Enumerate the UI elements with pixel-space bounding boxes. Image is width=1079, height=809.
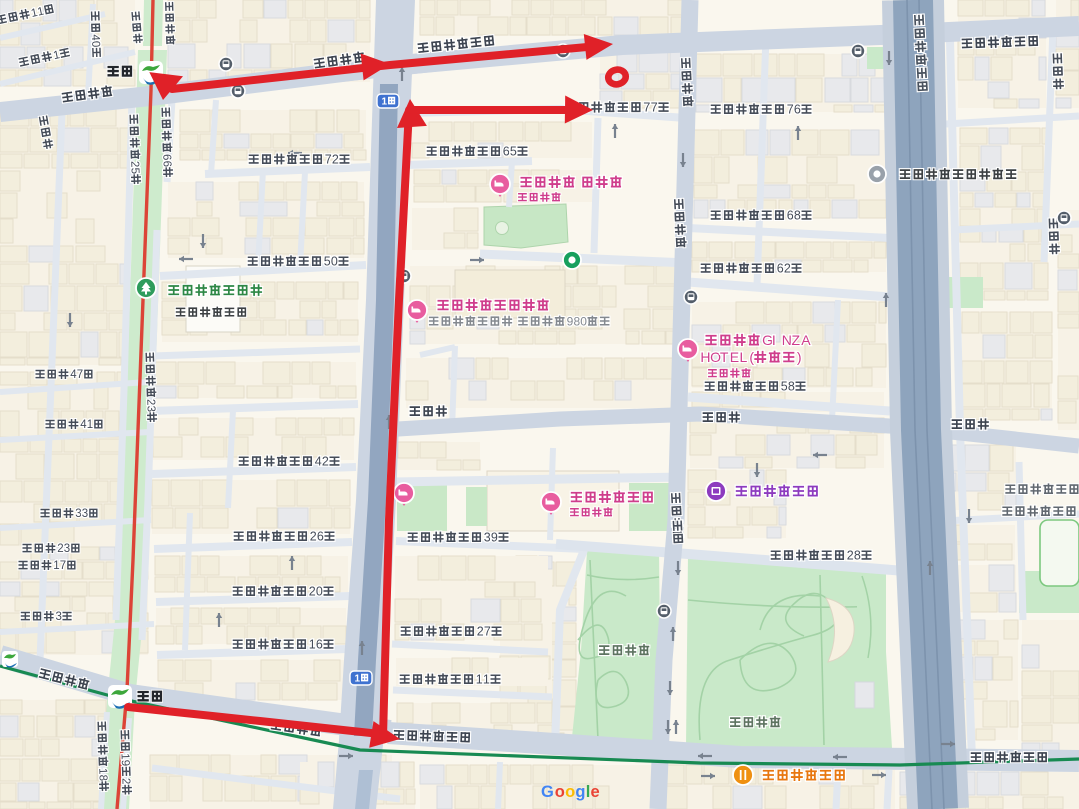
svg-text:8: 8 [794,209,801,223]
svg-text:5: 5 [324,255,331,269]
svg-text:8: 8 [97,774,109,781]
svg-text:2: 2 [322,455,329,469]
svg-text:6: 6 [316,638,323,652]
svg-text:8: 8 [854,549,861,563]
svg-text:9: 9 [119,760,131,767]
svg-text:3: 3 [75,508,81,520]
svg-text:3: 3 [484,531,491,545]
svg-text:L: L [740,349,748,365]
svg-text:1: 1 [483,673,490,687]
svg-text:3: 3 [56,611,62,623]
svg-text:2: 2 [477,625,484,639]
svg-text:6: 6 [777,262,784,276]
svg-text:0: 0 [316,585,323,599]
svg-text:6: 6 [503,145,510,159]
svg-text:I: I [772,332,776,348]
svg-text:7: 7 [77,369,83,381]
svg-text:1: 1 [87,419,93,431]
svg-text:7: 7 [643,100,650,115]
svg-text:2: 2 [332,153,339,167]
svg-text:0: 0 [331,255,338,269]
svg-text:6: 6 [161,160,173,167]
svg-text:1: 1 [382,97,388,108]
svg-text:2: 2 [119,778,131,785]
svg-text:7: 7 [787,103,794,117]
svg-text:1: 1 [53,560,59,572]
svg-text:2: 2 [57,543,63,555]
svg-text:1: 1 [355,674,361,685]
svg-text:6: 6 [787,209,794,223]
svg-text:T: T [720,349,729,365]
svg-text:): ) [797,349,802,365]
svg-text:2: 2 [310,530,317,544]
svg-text:5: 5 [510,145,517,159]
svg-text:o: o [555,783,565,801]
svg-text:1: 1 [309,638,316,652]
svg-text:7: 7 [484,625,491,639]
svg-text:0: 0 [580,314,587,328]
svg-text:5: 5 [781,380,788,394]
svg-text:4: 4 [315,455,322,469]
svg-text:A: A [801,332,811,348]
svg-text:0: 0 [89,41,101,48]
svg-text:e: e [591,783,600,801]
svg-text:g: g [575,783,585,801]
svg-text:Z: Z [792,332,801,348]
svg-text:3: 3 [145,405,157,412]
svg-text:6: 6 [794,103,801,117]
svg-text:1: 1 [476,673,483,687]
svg-text:7: 7 [60,560,66,572]
svg-text:9: 9 [491,531,498,545]
svg-text:6: 6 [317,530,324,544]
svg-text:7: 7 [325,153,332,167]
svg-text:2: 2 [784,262,791,276]
svg-text:H: H [700,349,710,365]
svg-text:N: N [782,332,792,348]
svg-text:(: ( [749,349,754,365]
svg-text:8: 8 [788,380,795,394]
svg-text:2: 2 [847,549,854,563]
svg-text:5: 5 [129,167,141,174]
svg-text:2: 2 [309,585,316,599]
svg-text:E: E [730,349,739,365]
svg-text:3: 3 [82,508,88,520]
svg-text:7: 7 [651,100,658,115]
svg-text:3: 3 [64,543,70,555]
svg-text:o: o [565,783,575,801]
svg-text:G: G [541,783,554,801]
